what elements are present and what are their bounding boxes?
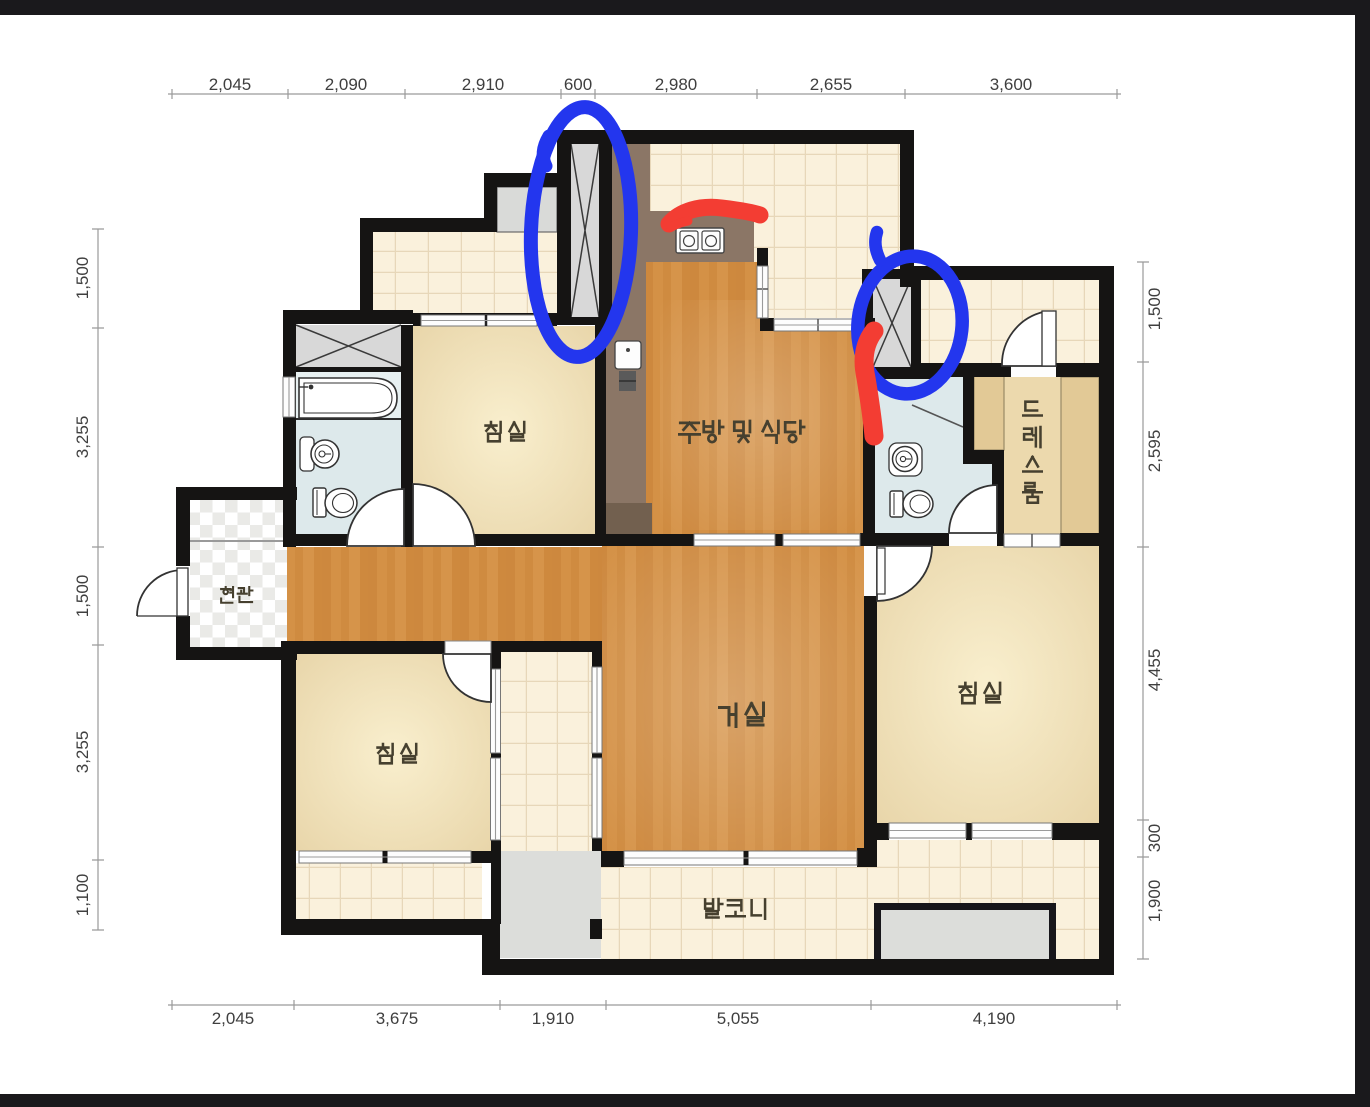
svg-text:4,190: 4,190 xyxy=(973,1009,1016,1028)
svg-text:600: 600 xyxy=(564,75,592,94)
svg-text:3,675: 3,675 xyxy=(376,1009,419,1028)
svg-text:1,100: 1,100 xyxy=(73,874,92,917)
svg-text:3,600: 3,600 xyxy=(990,75,1033,94)
svg-text:2,595: 2,595 xyxy=(1145,430,1164,473)
svg-text:1,910: 1,910 xyxy=(532,1009,575,1028)
svg-text:1,500: 1,500 xyxy=(1145,288,1164,331)
svg-text:2,980: 2,980 xyxy=(655,75,698,94)
svg-text:3,255: 3,255 xyxy=(73,416,92,459)
svg-text:1,500: 1,500 xyxy=(73,257,92,300)
svg-text:4,455: 4,455 xyxy=(1145,649,1164,692)
svg-text:2,090: 2,090 xyxy=(325,75,368,94)
svg-text:2,655: 2,655 xyxy=(810,75,853,94)
svg-text:2,045: 2,045 xyxy=(212,1009,255,1028)
svg-text:5,055: 5,055 xyxy=(717,1009,760,1028)
svg-text:300: 300 xyxy=(1145,824,1164,852)
svg-text:1,500: 1,500 xyxy=(73,575,92,618)
svg-text:1,900: 1,900 xyxy=(1145,880,1164,923)
svg-text:2,910: 2,910 xyxy=(462,75,505,94)
svg-text:2,045: 2,045 xyxy=(209,75,252,94)
svg-text:3,255: 3,255 xyxy=(73,731,92,774)
